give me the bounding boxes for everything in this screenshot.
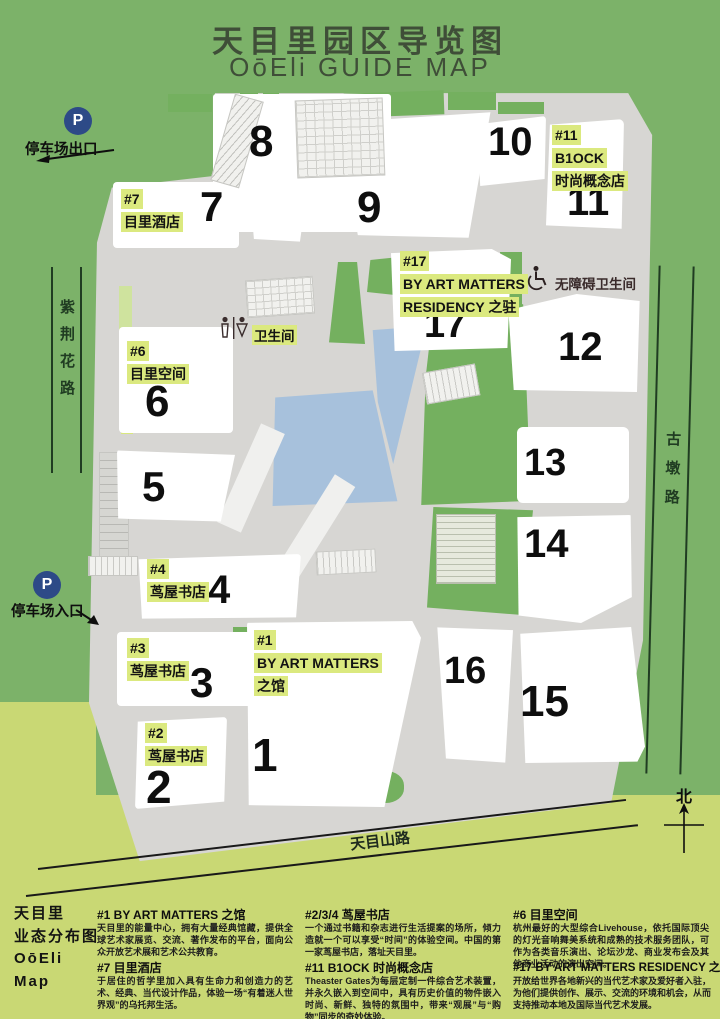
grid-structure — [295, 97, 386, 178]
label-line: 茑屋书店 — [147, 582, 209, 602]
green-strip — [448, 92, 496, 110]
parking-icon: P — [64, 107, 92, 135]
arrow-left-icon — [28, 146, 116, 166]
label-line: #11 — [552, 125, 581, 145]
legend-entry-heading: #2/3/4 茑屋书店 — [305, 906, 390, 923]
label-line: #1 — [254, 630, 276, 650]
building-17-label: #17BY ART MATTERSRESIDENCY 之驻 — [400, 251, 528, 317]
label-line: 时尚概念店 — [552, 171, 628, 191]
toilet-label: 卫生间 — [252, 325, 297, 345]
arrow-right-icon — [72, 606, 104, 630]
legend-entry-body: 天目里的能量中心，拥有大量经典馆藏，提供全球艺术家展览、交流、著作发布的平台，面… — [97, 922, 293, 958]
legend-entry-heading: #7 目里酒店 — [97, 959, 162, 976]
building-15-number: 15 — [520, 680, 569, 724]
building-16-number: 16 — [444, 652, 486, 690]
stairs-structure — [315, 548, 376, 575]
label-line: B1OCK — [552, 148, 607, 168]
stairs-structure — [88, 556, 138, 576]
road-zijinhua-label: 紫荆花路 — [56, 299, 77, 407]
legend-entry-body: 开放给世界各地新兴的当代艺术家及爱好者入驻，为他们提供创作、展示、交流的环境和机… — [513, 975, 711, 1011]
accessible-toilet-label: 无障碍卫生间 — [555, 273, 636, 293]
road-gudun-label: 古墩路 — [660, 431, 683, 519]
stairs-structure — [436, 514, 496, 584]
road-zijinhua: 紫荆花路 — [51, 267, 82, 473]
page-subtitle: OōEli GUIDE MAP — [0, 52, 720, 83]
green-strip — [168, 94, 212, 112]
building-12-number: 12 — [558, 327, 603, 367]
label-line: OōEli — [14, 948, 99, 971]
building-5 — [117, 449, 235, 523]
building-11-label: #11B1OCK时尚概念店 — [552, 125, 628, 191]
green-strip — [498, 102, 544, 114]
building-3-label: #3茑屋书店 — [127, 638, 189, 681]
label-line: Map — [14, 971, 99, 994]
legend-entry-heading: #6 目里空间 — [513, 906, 578, 923]
building-1-number: 1 — [252, 732, 278, 778]
building-13-number: 13 — [524, 444, 566, 482]
legend-entry-body: 一个通过书籍和杂志进行生活提案的场所，倾力造就一个可以享受“时间”的体验空间。中… — [305, 922, 501, 958]
legend-title: 天目里业态分布图OōEliMap — [14, 903, 99, 993]
building-3-number: 3 — [190, 662, 213, 704]
label-line: #3 — [127, 638, 149, 658]
stairs-structure — [245, 276, 315, 319]
legend-entry-body: Theaster Gates为每层定制一件综合艺术装置，并永久嵌入到空间中，具有… — [305, 975, 501, 1019]
building-14-number: 14 — [524, 524, 569, 564]
label-line: 目里酒店 — [121, 212, 183, 232]
building-4-number: 4 — [208, 570, 230, 610]
label-line: #4 — [147, 559, 169, 579]
label-line: #7 — [121, 189, 143, 209]
legend-entry-body: 于居住的哲学里加入具有生命力和创造力的艺术、经典、当代设计作品，体验一场“有着迷… — [97, 975, 293, 1011]
label-line: 茑屋书店 — [145, 746, 207, 766]
compass: 北 — [652, 783, 716, 859]
building-2-label: #2茑屋书店 — [145, 723, 207, 766]
legend-entry-heading: #11 B1OCK 时尚概念店 — [305, 959, 433, 976]
compass-arrow-icon — [662, 803, 706, 855]
building-10-number: 10 — [488, 122, 533, 162]
guide-map-poster: 天目里园区导览图 OōEli GUIDE MAP 1 — [0, 0, 720, 1019]
label-line: RESIDENCY 之驻 — [400, 297, 519, 317]
label-line: 茑屋书店 — [127, 661, 189, 681]
building-8-number: 8 — [249, 120, 273, 164]
wheelchair-icon — [526, 265, 552, 293]
building-4-label: #4茑屋书店 — [147, 559, 209, 602]
road-gudun: 古墩路 — [645, 266, 694, 775]
building-6-number: 6 — [145, 380, 169, 424]
toilet-icon — [220, 316, 250, 342]
label-line: #6 — [127, 341, 149, 361]
label-line: 之馆 — [254, 676, 288, 696]
label-line: BY ART MATTERS — [254, 653, 382, 673]
legend: 天目里业态分布图OōEliMap #1 BY ART MATTERS 之馆 天目… — [0, 893, 720, 1019]
label-line: BY ART MATTERS — [400, 274, 528, 294]
building-9-number: 9 — [357, 186, 381, 230]
building-7-label: #7目里酒店 — [121, 189, 183, 232]
legend-entry-heading: #17 BY ART MATTERS RESIDENCY 之驻 — [513, 959, 720, 975]
parking-icon: P — [33, 571, 61, 599]
building-6-label: #6目里空间 — [127, 341, 189, 384]
label-line: #2 — [145, 723, 167, 743]
label-line: 天目里 — [14, 903, 99, 926]
label-line: #17 — [400, 251, 429, 271]
building-2-number: 2 — [146, 764, 172, 810]
building-1-label: #1BY ART MATTERS之馆 — [254, 630, 382, 696]
building-5-number: 5 — [142, 466, 165, 508]
building-7-number: 7 — [200, 186, 223, 228]
legend-entry-heading: #1 BY ART MATTERS 之馆 — [97, 906, 245, 923]
label-line: 目里空间 — [127, 364, 189, 384]
label-line: 业态分布图 — [14, 926, 99, 949]
